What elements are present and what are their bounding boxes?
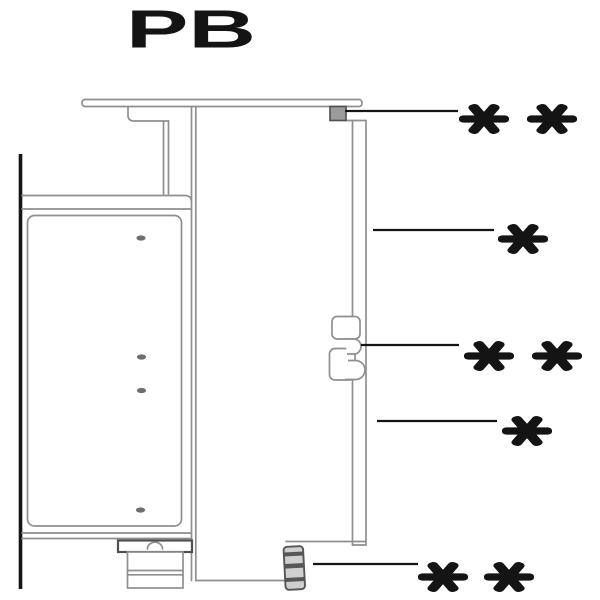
asterisk-mark	[532, 340, 582, 372]
clip-hook-lower	[345, 361, 365, 380]
clip-hook-upper	[345, 339, 361, 354]
panel-hole-dot	[136, 507, 145, 512]
cabinet-top-edge	[22, 196, 192, 210]
panel-hole-dot	[137, 354, 146, 359]
asterisk-mark	[498, 223, 548, 255]
panel-clip	[330, 317, 366, 381]
annotation-panel-clip	[361, 340, 582, 372]
annotation-worktop-fixing	[345, 103, 577, 135]
diagram-page: PB	[0, 0, 600, 600]
annotation-back-panel-upper	[373, 223, 548, 255]
cabinet-side-panel	[28, 216, 182, 527]
panel-hole-dot	[137, 388, 146, 393]
annotation-back-panel-lower	[377, 415, 552, 447]
top-fixing-bracket	[330, 107, 346, 121]
asterisk-mark	[484, 561, 534, 593]
worktop-support-profile	[128, 107, 169, 194]
asterisk-mark	[464, 340, 514, 372]
panel-hole-dot	[136, 235, 145, 240]
diagram-title: PB	[126, 0, 256, 60]
cabinet-section-diagram: PB	[0, 0, 600, 600]
cabinet-back-panel	[192, 107, 285, 581]
worktop-panel	[82, 100, 362, 107]
asterisk-mark	[502, 415, 552, 447]
asterisk-mark	[459, 103, 509, 135]
plinth-assembly	[118, 541, 192, 589]
asterisk-mark	[527, 103, 577, 135]
annotation-base-fixing	[313, 561, 534, 593]
asterisk-mark	[418, 561, 468, 593]
bottom-fixing-clip	[283, 546, 305, 590]
cabinet-bottom-edge	[22, 533, 192, 539]
